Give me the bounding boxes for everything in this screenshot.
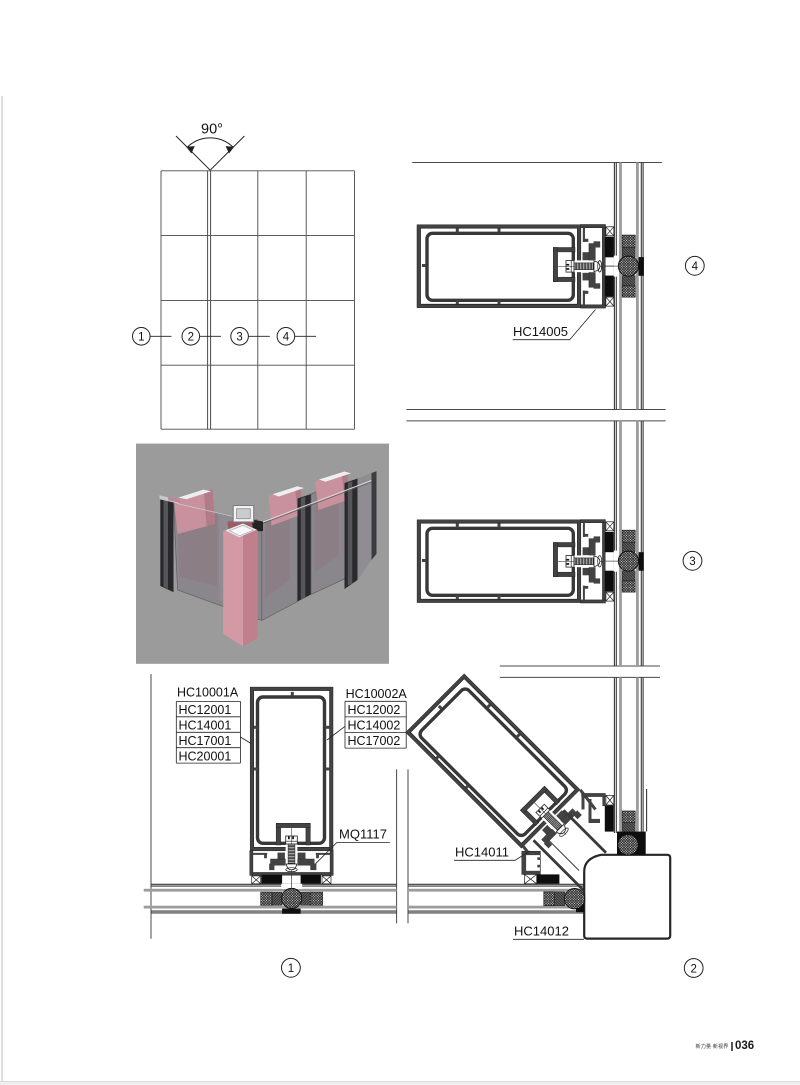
- svg-text:4: 4: [692, 261, 699, 273]
- svg-text:MQ1117: MQ1117: [339, 827, 387, 842]
- svg-text:2: 2: [690, 963, 696, 975]
- svg-text:HC17002: HC17002: [348, 734, 401, 748]
- svg-text:3: 3: [236, 331, 242, 343]
- svg-text:HC20001: HC20001: [179, 749, 232, 763]
- svg-text:3: 3: [689, 556, 695, 568]
- svg-text:HC12001: HC12001: [179, 703, 232, 717]
- svg-text:HC14002: HC14002: [348, 719, 401, 733]
- svg-text:4: 4: [283, 331, 290, 343]
- svg-text:HC17001: HC17001: [179, 734, 232, 748]
- svg-text:HC14005: HC14005: [513, 324, 568, 339]
- svg-text:2: 2: [188, 331, 194, 343]
- svg-text:1: 1: [288, 963, 294, 975]
- svg-text:HC10002A: HC10002A: [346, 687, 408, 701]
- svg-text:HC14001: HC14001: [179, 718, 232, 732]
- svg-text:HC10001A: HC10001A: [177, 686, 239, 700]
- svg-text:90°: 90°: [201, 122, 223, 138]
- svg-text:HC12002: HC12002: [348, 703, 401, 717]
- svg-text:HC14012: HC14012: [514, 924, 569, 939]
- svg-text:1: 1: [138, 331, 144, 343]
- svg-text:HC14011: HC14011: [455, 845, 509, 860]
